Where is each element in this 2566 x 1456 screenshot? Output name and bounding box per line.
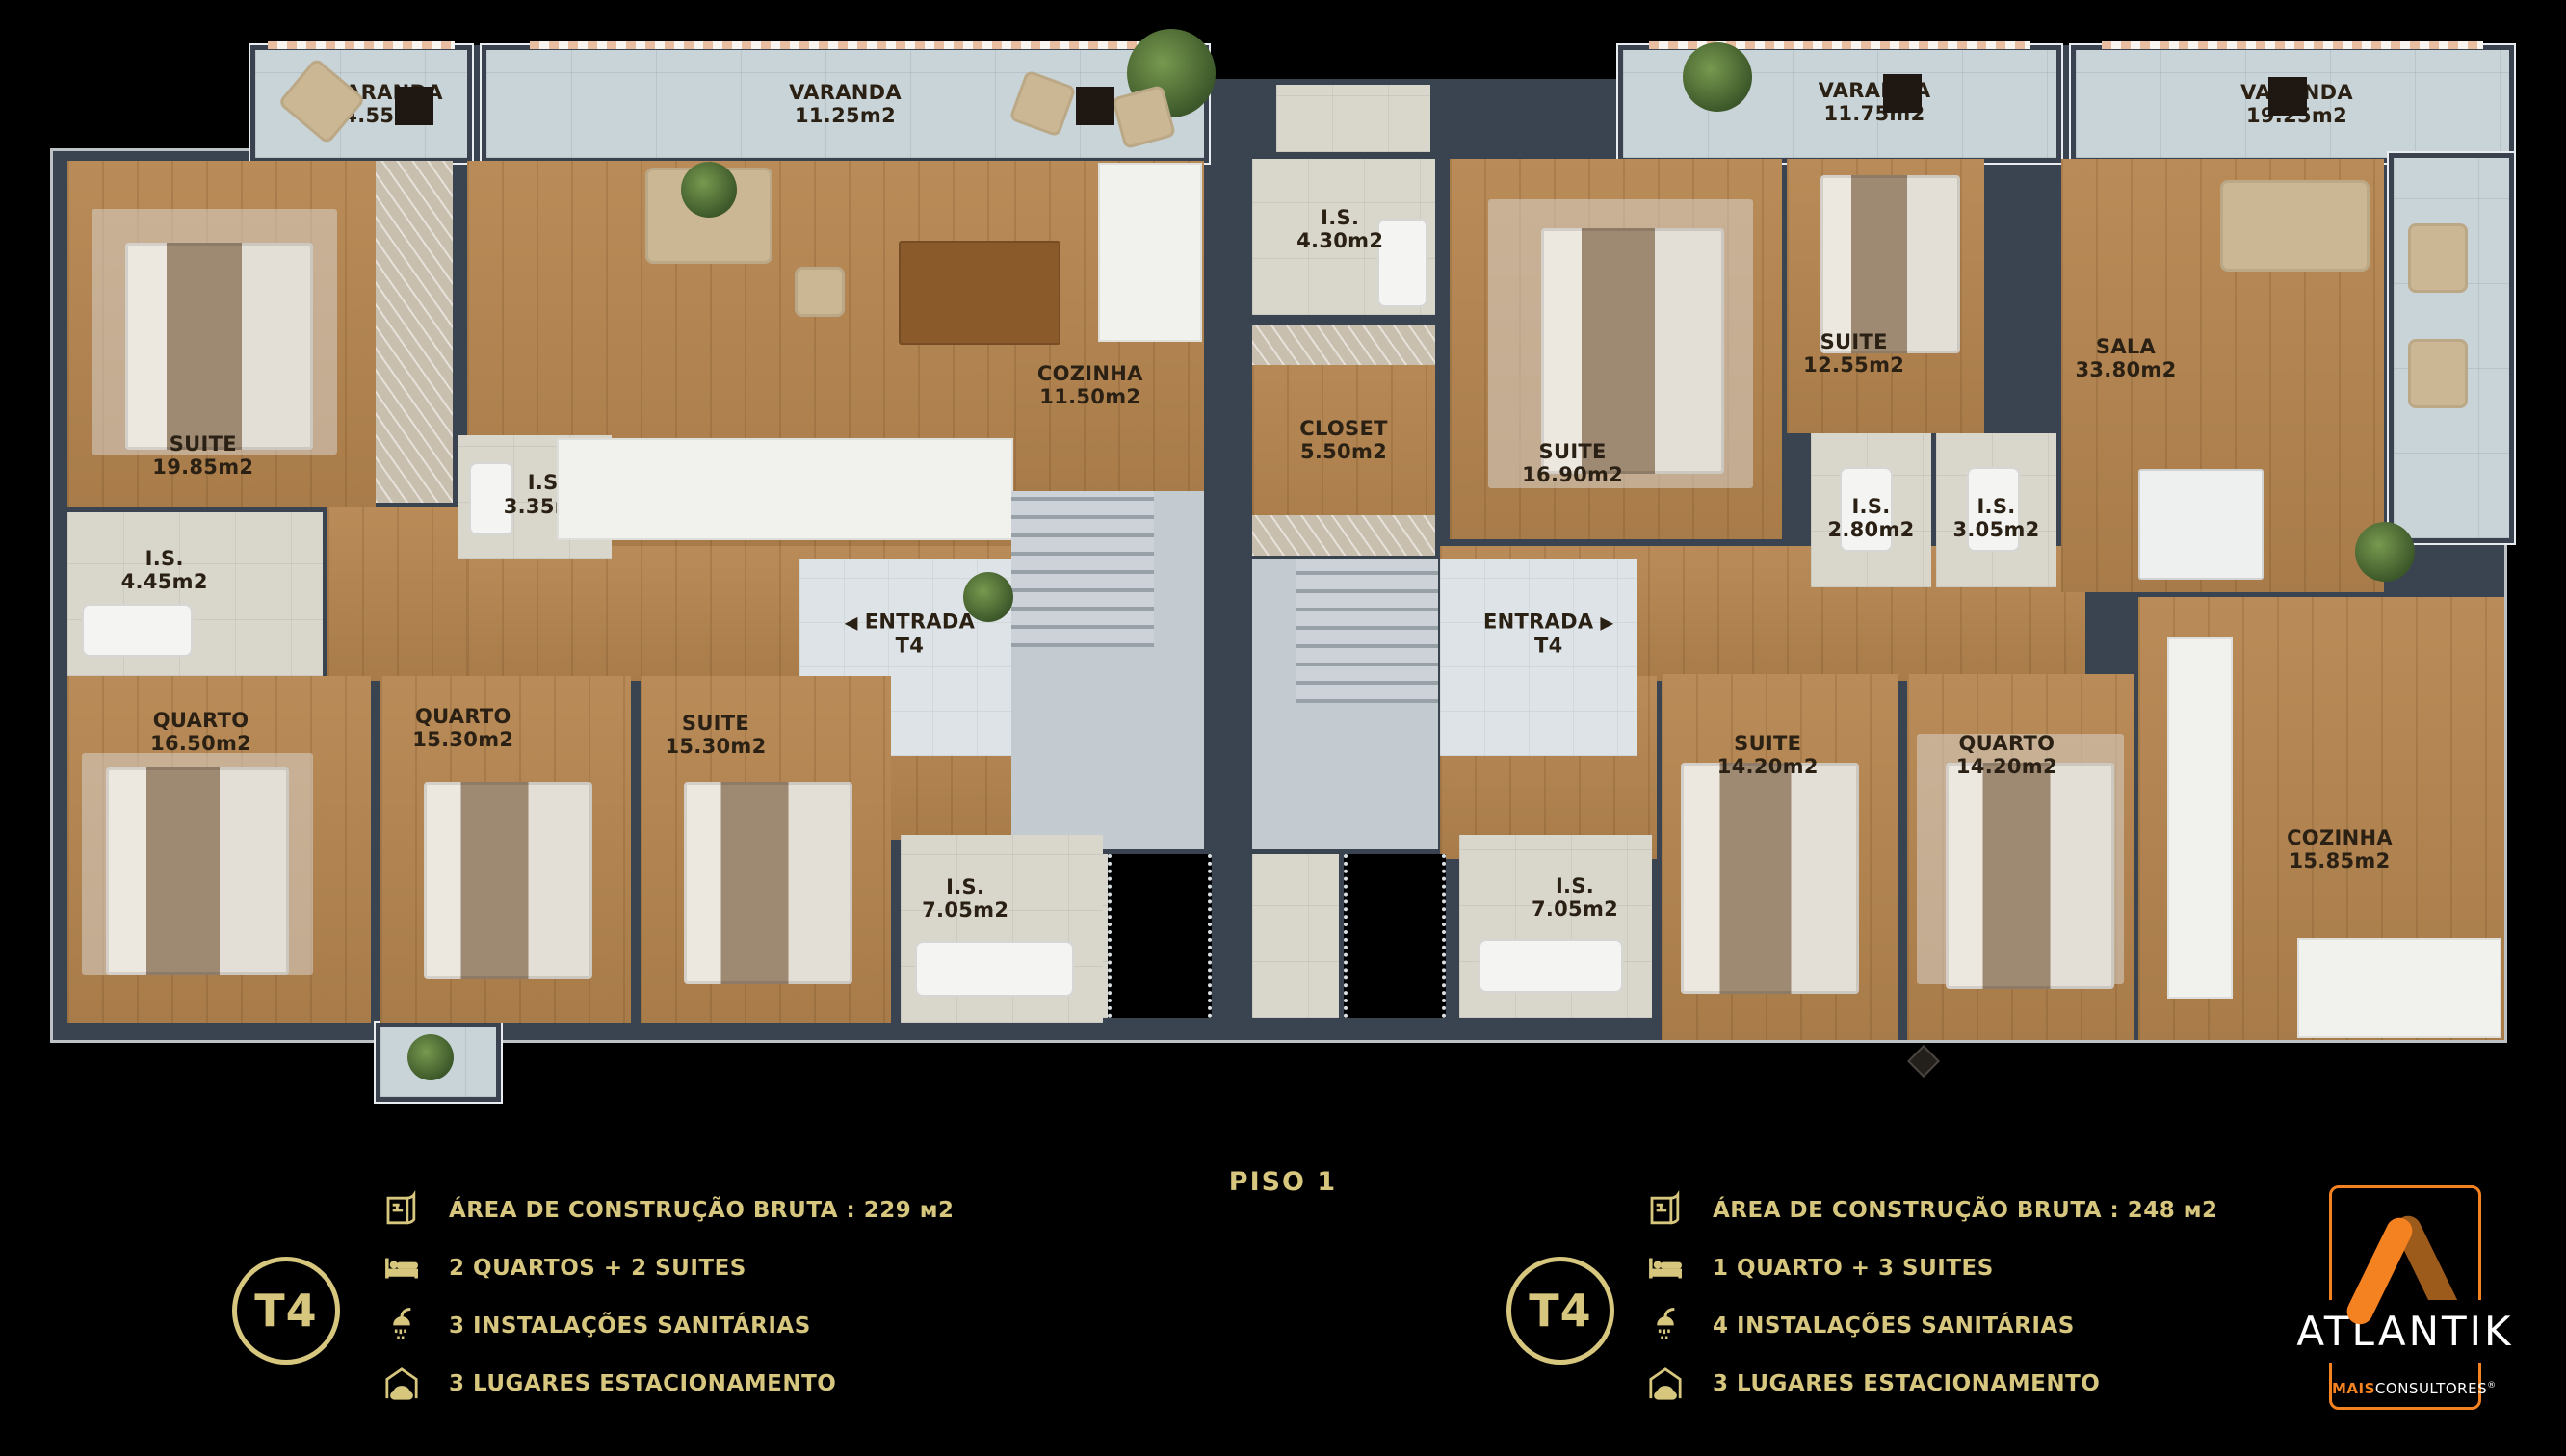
room-suite-16-90: SUITE 16.90m2 [1450, 159, 1782, 539]
plant [963, 572, 1013, 622]
elevator-shaft [1108, 854, 1212, 1018]
room-name: COZINHA [1037, 362, 1143, 385]
legend-text: 3 LUGARES ESTACIONAMENTO [1713, 1371, 2100, 1396]
room-label: I.S. 7.05m2 [922, 875, 1008, 922]
sun-lounger [2408, 339, 2468, 408]
room-name: COZINHA [2287, 826, 2393, 849]
room-area: 15.30m2 [665, 735, 766, 758]
legend-row: 4 INSTALAÇÕES SANITÁRIAS [1645, 1306, 2218, 1346]
dining-table [2138, 469, 2264, 580]
page: VARANDA 4.55m2 VARANDA 11.25m2 VARANDA 1… [0, 0, 2566, 1456]
room-area: 15.85m2 [2287, 849, 2393, 872]
room-name: CLOSET [1299, 417, 1388, 440]
legend-text: ÁREA DE CONSTRUÇÃO BRUTA : 248 м2 [1713, 1198, 2218, 1223]
room-area: 4.45m2 [121, 570, 208, 593]
bed [684, 782, 852, 984]
room-area: 7.05m2 [1532, 897, 1618, 921]
room-is-7-05-left: I.S. 7.05m2 [901, 835, 1103, 1023]
room-label: VARANDA 11.25m2 [789, 81, 902, 127]
room-area: 16.50m2 [150, 732, 251, 755]
room-is-7-05-right: I.S. 7.05m2 [1459, 835, 1652, 1018]
armchair [795, 267, 845, 317]
legend-left: ÁREA DE CONSTRUÇÃO BRUTA : 229 м2 2 QUAR… [381, 1190, 955, 1404]
room-name: SUITE [1803, 330, 1904, 353]
unit-badge-right: T4 [1506, 1257, 1614, 1365]
stairs [1296, 559, 1438, 703]
bed [1946, 763, 2114, 989]
garage-icon [381, 1364, 422, 1404]
room-suite-14-20: SUITE 14.20m2 [1662, 674, 1898, 1040]
entry-arrow-icon: ◀ [845, 612, 858, 633]
room-name: QUARTO [1956, 731, 2057, 754]
blueprint-icon [1645, 1190, 1686, 1231]
room-label: SUITE 15.30m2 [665, 712, 766, 758]
brand-subtitle-rest: CONSULTORES [2375, 1380, 2487, 1397]
room-label: CLOSET 5.50m2 [1299, 417, 1388, 463]
legend-text: 2 QUARTOS + 2 SUITES [449, 1256, 746, 1281]
room-label: QUARTO 16.50m2 [150, 708, 251, 754]
plant [681, 162, 737, 218]
sofa [2220, 180, 2370, 272]
room-area: 14.20m2 [1717, 755, 1819, 778]
legend-row: 3 INSTALAÇÕES SANITÁRIAS [381, 1306, 955, 1346]
legend-row: 1 QUARTO + 3 SUITES [1645, 1248, 2218, 1288]
entrance-right: ENTRADA▶ T4 [1440, 559, 1637, 756]
room-label: I.S. 3.05m2 [1952, 495, 2039, 541]
bed [1541, 228, 1724, 474]
room-is-3-05: I.S. 3.05m2 [1936, 433, 2056, 587]
room-label: I.S. 4.45m2 [121, 546, 208, 592]
room-name: SUITE [152, 432, 253, 455]
floor-plan: VARANDA 4.55m2 VARANDA 11.25m2 VARANDA 1… [53, 21, 2514, 1050]
wardrobe [1252, 325, 1435, 365]
atlantik-logo: ATLANTIK MAISCONSULTORES® [2329, 1185, 2481, 1410]
garage-icon [1645, 1364, 1686, 1404]
room-area: 11.50m2 [1037, 385, 1143, 408]
wardrobe [1252, 515, 1435, 556]
legend-text: 1 QUARTO + 3 SUITES [1713, 1256, 1994, 1281]
room-area: 3.05m2 [1952, 518, 2039, 541]
entrance-line: ◀ENTRADA [845, 610, 976, 634]
room-name: ENTRADA [1483, 610, 1593, 633]
elevator-lobby [1252, 854, 1339, 1018]
room-name: QUARTO [150, 708, 251, 731]
room-suite-15-30: SUITE 15.30m2 [641, 676, 891, 1023]
shower-icon [1645, 1306, 1686, 1346]
room-label: QUARTO 14.20m2 [1956, 731, 2057, 777]
room-name: I.S. [1952, 495, 2039, 518]
dining-table [899, 241, 1060, 345]
bed [125, 243, 313, 450]
room-name: I.S. [922, 875, 1008, 898]
unit-badge-left: T4 [232, 1257, 340, 1365]
room-name: QUARTO [412, 705, 513, 728]
room-area: 5.50m2 [1299, 440, 1388, 463]
terrace-table [395, 87, 433, 125]
compass-marker [1907, 1045, 1940, 1078]
room-area: 2.80m2 [1827, 518, 1914, 541]
shower-icon [381, 1306, 422, 1346]
room-cozinha-15-85: COZINHA 15.85m2 [2138, 597, 2504, 1040]
unit-tag: T4 [254, 1285, 317, 1337]
bed-icon [381, 1248, 422, 1288]
bed [106, 767, 289, 975]
wardrobe-corridor [376, 161, 453, 503]
room-quarto-14-20: QUARTO 14.20m2 [1907, 674, 2134, 1040]
unit-tag: T4 [1483, 634, 1614, 657]
washbasin [1479, 939, 1623, 993]
brand-subtitle-bold: MAIS [2332, 1380, 2375, 1397]
bathtub [82, 604, 193, 657]
sun-lounger [2408, 223, 2468, 293]
legend-text: 3 LUGARES ESTACIONAMENTO [449, 1371, 836, 1396]
room-area: 16.90m2 [1522, 463, 1623, 486]
bed [1820, 175, 1960, 353]
room-name: ENTRADA [865, 610, 975, 633]
bed [1681, 763, 1859, 994]
room-label: SUITE 19.85m2 [152, 432, 253, 479]
legend-row: 3 LUGARES ESTACIONAMENTO [1645, 1364, 2218, 1404]
kitchen-island [2167, 637, 2233, 999]
room-name: I.S. [1532, 873, 1618, 897]
legend-row: ÁREA DE CONSTRUÇÃO BRUTA : 229 м2 [381, 1190, 955, 1231]
room-area: 11.25m2 [789, 104, 902, 127]
room-name: VARANDA [789, 81, 902, 104]
room-name: I.S. [121, 546, 208, 569]
room-label: SUITE 16.90m2 [1522, 440, 1623, 486]
room-label: SUITE 14.20m2 [1717, 731, 1819, 777]
room-name: SUITE [1717, 731, 1819, 754]
entrance-line: ENTRADA▶ [1483, 610, 1614, 634]
room-area: 7.05m2 [922, 898, 1008, 922]
room-suite-12-55: SUITE 12.55m2 [1787, 159, 1984, 433]
room-quarto-15-30: QUARTO 15.30m2 [380, 676, 631, 1023]
blueprint-icon [381, 1190, 422, 1231]
entry-arrow-icon: ▶ [1600, 612, 1613, 633]
unit-tag: T4 [845, 634, 976, 657]
terrace-table [1076, 87, 1114, 125]
room-name: I.S. [1827, 495, 1914, 518]
entrance-label: ◀ENTRADA T4 [845, 610, 976, 657]
room-label: SALA 33.80m2 [2075, 335, 2176, 381]
elevator-shaft [1344, 854, 1446, 1018]
room-label: COZINHA 11.50m2 [1037, 362, 1143, 408]
legend-right: ÁREA DE CONSTRUÇÃO BRUTA : 248 м2 1 QUAR… [1645, 1190, 2218, 1404]
room-label: I.S. 7.05m2 [1532, 873, 1618, 920]
hall [327, 507, 467, 681]
room-name: I.S. [1296, 206, 1383, 229]
plant [1683, 42, 1752, 112]
room-quarto-16-50: QUARTO 16.50m2 [67, 676, 371, 1023]
room-label: QUARTO 15.30m2 [412, 705, 513, 751]
brand-subtitle: MAISCONSULTORES® [2332, 1380, 2478, 1397]
legend-text: 3 INSTALAÇÕES SANITÁRIAS [449, 1313, 811, 1339]
plant [2355, 522, 2415, 582]
room-name: SUITE [1522, 440, 1623, 463]
entry-canopy [1276, 85, 1430, 152]
bed [424, 782, 592, 979]
room-sala-33-80: SALA 33.80m2 [2061, 159, 2384, 592]
stairs [1011, 491, 1154, 647]
bed-icon [1645, 1248, 1686, 1288]
plant [407, 1034, 454, 1080]
unit-tag: T4 [1529, 1285, 1591, 1337]
entrance-label: ENTRADA▶ T4 [1483, 610, 1614, 657]
legend-row: 3 LUGARES ESTACIONAMENTO [381, 1364, 955, 1404]
room-name: SUITE [665, 712, 766, 735]
room-is-4-30: I.S. 4.30m2 [1252, 159, 1435, 315]
kitchen-cabinets [557, 438, 1013, 540]
room-area: 14.20m2 [1956, 755, 2057, 778]
stair-landing [1011, 491, 1204, 849]
room-label: SUITE 12.55m2 [1803, 330, 1904, 377]
room-suite-19-85: SUITE 19.85m2 [67, 161, 376, 507]
room-area: 19.85m2 [152, 455, 253, 479]
room-area: 12.55m2 [1803, 353, 1904, 377]
bathtub [1377, 219, 1427, 307]
kitchen-appliances [2297, 938, 2501, 1038]
room-is-2-80: I.S. 2.80m2 [1811, 433, 1931, 587]
legend-text: 4 INSTALAÇÕES SANITÁRIAS [1713, 1313, 2075, 1339]
room-name: SALA [2075, 335, 2176, 358]
stair-landing [1252, 559, 1438, 849]
kitchen-counter [1098, 163, 1202, 342]
legend-text: ÁREA DE CONSTRUÇÃO BRUTA : 229 м2 [449, 1198, 955, 1223]
terrace-table [1883, 74, 1922, 113]
room-label: COZINHA 15.85m2 [2287, 826, 2393, 872]
brand-name: ATLANTIK [2278, 1300, 2532, 1363]
terrace-table [2268, 77, 2307, 116]
registered-mark: ® [2487, 1381, 2497, 1391]
room-label: I.S. 2.80m2 [1827, 495, 1914, 541]
legend-row: ÁREA DE CONSTRUÇÃO BRUTA : 248 м2 [1645, 1190, 2218, 1231]
room-is-4-45: I.S. 4.45m2 [67, 512, 323, 676]
room-area: 15.30m2 [412, 728, 513, 751]
washbasin [915, 941, 1074, 997]
room-area: 33.80m2 [2075, 358, 2176, 381]
room-area: 4.30m2 [1296, 229, 1383, 252]
room-label: I.S. 4.30m2 [1296, 206, 1383, 252]
room-closet-5-50: CLOSET 5.50m2 [1252, 325, 1435, 556]
legend-row: 2 QUARTOS + 2 SUITES [381, 1248, 955, 1288]
